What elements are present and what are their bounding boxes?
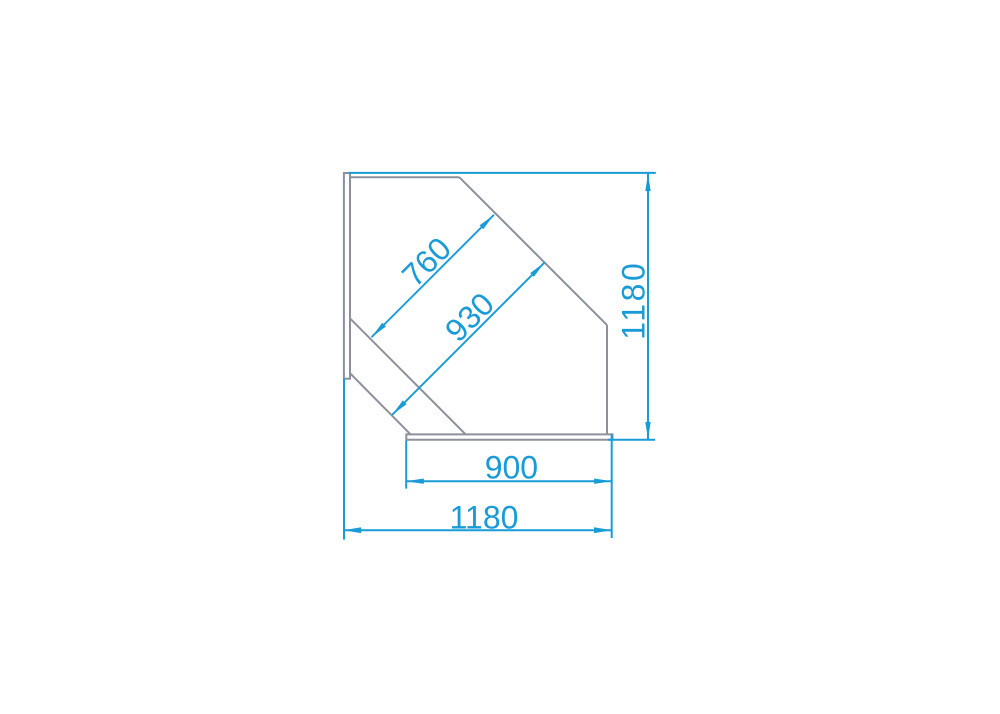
svg-text:1180: 1180 xyxy=(615,261,651,340)
svg-text:760: 760 xyxy=(395,230,458,293)
svg-text:930: 930 xyxy=(438,286,501,349)
svg-text:900: 900 xyxy=(485,450,538,486)
svg-text:1180: 1180 xyxy=(450,500,519,536)
